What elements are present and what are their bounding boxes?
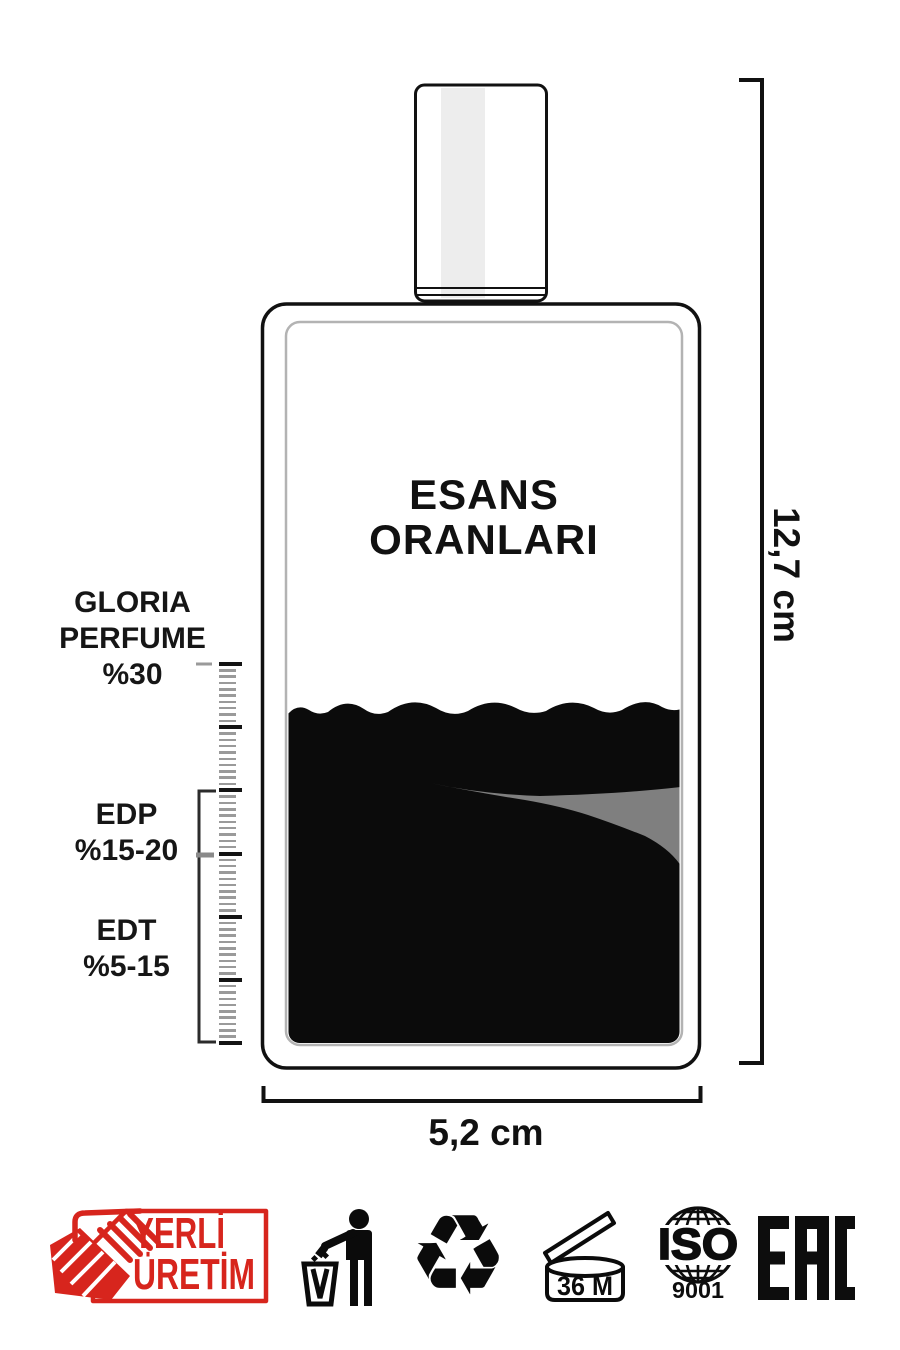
ruler-minor-tick [219,814,236,817]
ruler-major-tick [219,788,242,792]
ruler-minor-tick [219,985,236,988]
ruler-minor-tick [219,878,236,881]
ruler-minor-tick [219,1010,236,1013]
ruler-major-tick [219,915,242,919]
gloria-line: GLORIA [40,585,225,621]
height-dimension-label: 12,7 cm [716,505,856,645]
ruler-minor-tick [219,991,236,994]
ruler-minor-tick [219,669,236,672]
period-after-opening-icon: 36 M [535,1203,635,1303]
edt-percent: %5-15 [34,949,219,985]
iso-9001-icon: ISO 9001 [653,1203,743,1303]
ruler-major-tick [219,1041,242,1045]
ruler-minor-tick [219,840,236,843]
ruler-minor-tick [219,821,236,824]
ruler-minor-tick [219,871,236,874]
ruler-major-tick [219,662,242,666]
ruler-minor-tick [219,998,236,1001]
ruler-minor-tick [219,947,236,950]
bottle-title: ESANS ORANLARI [284,472,684,562]
ruler-minor-tick [219,1029,236,1032]
ruler-minor-tick [219,941,236,944]
ruler-minor-tick [219,865,236,868]
ruler-minor-tick [219,764,236,767]
ruler-minor-tick [219,713,236,716]
ruler-minor-tick [219,795,236,798]
pao-months-text: 36 M [557,1271,613,1301]
title-line-2: ORANLARI [284,517,684,562]
edp-name: EDP [34,797,219,833]
ruler-minor-tick [219,675,236,678]
edt-label: EDT %5-15 [34,913,219,985]
ruler-minor-tick [219,827,236,830]
ruler-minor-tick [219,859,236,862]
ruler-major-tick [219,725,242,729]
ruler-minor-tick [219,909,236,912]
edt-name: EDT [34,913,219,949]
liquid-fill [287,702,681,1043]
ruler-minor-tick [219,701,236,704]
recycling-icon: ♻ [398,1194,518,1318]
ruler-minor-tick [219,776,236,779]
gloria-percent: %30 [40,657,225,693]
ruler-minor-tick [219,934,236,937]
ruler-minor-tick [219,1016,236,1019]
perfume-infographic: ESANS ORANLARI GLORIA PERFUME %30 EDP %1… [0,0,900,1350]
cap-highlight [441,88,485,298]
ruler-minor-tick [219,770,236,773]
ruler-minor-tick [219,1035,236,1038]
tidy-man-icon [300,1206,390,1308]
ruler-minor-tick [219,694,236,697]
ruler-minor-tick [219,682,236,685]
ruler-minor-tick [219,732,236,735]
ruler-minor-tick [219,972,236,975]
ruler-minor-tick [219,846,236,849]
ruler-minor-tick [219,688,236,691]
ruler-minor-tick [219,903,236,906]
perfume-line: PERFUME [40,621,225,657]
ruler-minor-tick [219,720,236,723]
eac-logo: EAC [753,1208,858,1303]
ruler-minor-tick [219,802,236,805]
ruler-minor-tick [219,739,236,742]
bottle-cap [416,85,547,301]
ruler-minor-tick [219,928,236,931]
ruler-major-tick [219,852,242,856]
ruler-minor-tick [219,896,236,899]
gloria-perfume-label: GLORIA PERFUME %30 [40,585,225,693]
ruler-minor-tick [219,745,236,748]
ruler-minor-tick [219,966,236,969]
ruler-minor-tick [219,707,236,710]
ruler-major-tick [219,978,242,982]
yerli-uretim-badge: YERLİ ÜRETİM [45,1200,275,1312]
ruler-minor-tick [219,884,236,887]
uretim-text: ÜRETİM [133,1250,255,1299]
title-line-1: ESANS [284,472,684,517]
ruler-minor-tick [219,1023,236,1026]
ruler-minor-tick [219,1004,236,1007]
ruler-minor-tick [219,808,236,811]
recycle-glyph: ♻ [408,1200,508,1312]
ruler-minor-tick [219,960,236,963]
ruler-minor-tick [219,922,236,925]
ruler-minor-tick [219,751,236,754]
edp-percent: %15-20 [34,833,219,869]
width-dimension-label: 5,2 cm [286,1112,686,1154]
edp-label: EDP %15-20 [34,797,219,869]
iso-text: ISO [658,1220,738,1269]
ruler [219,664,242,1044]
ruler-minor-tick [219,953,236,956]
ruler-minor-tick [219,890,236,893]
iso-number-text: 9001 [672,1277,724,1303]
jar-lid [545,1213,614,1263]
ruler-minor-tick [219,783,236,786]
width-dimension-line [264,1086,701,1101]
ruler-minor-tick [219,833,236,836]
ruler-minor-tick [219,758,236,761]
